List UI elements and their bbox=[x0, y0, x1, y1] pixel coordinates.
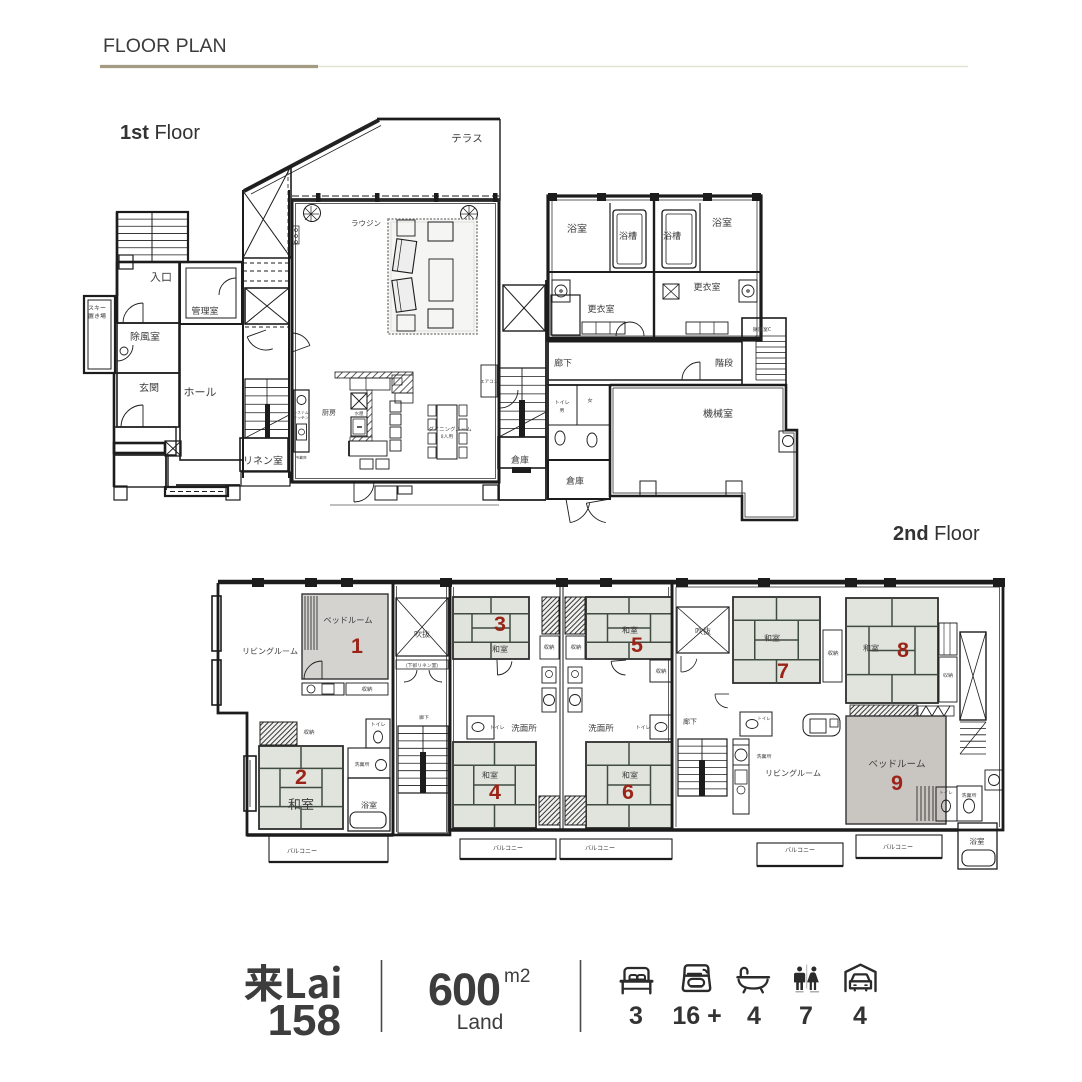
svg-text:1st Floor: 1st Floor bbox=[120, 122, 200, 144]
svg-text:6: 6 bbox=[622, 780, 634, 804]
svg-text:FLOOR PLAN: FLOOR PLAN bbox=[103, 35, 227, 57]
svg-text:Land: Land bbox=[457, 1011, 504, 1034]
svg-text:2: 2 bbox=[295, 765, 307, 789]
svg-text:5: 5 bbox=[631, 633, 643, 657]
svg-text:7: 7 bbox=[799, 1002, 813, 1030]
svg-text:3: 3 bbox=[494, 612, 506, 636]
svg-text:1: 1 bbox=[351, 634, 363, 658]
svg-text:3: 3 bbox=[629, 1002, 643, 1030]
svg-text:600: 600 bbox=[428, 964, 500, 1015]
svg-text:4: 4 bbox=[853, 1002, 867, 1030]
svg-text:8: 8 bbox=[897, 638, 909, 662]
svg-text:4: 4 bbox=[747, 1002, 761, 1030]
svg-text:4: 4 bbox=[489, 780, 501, 804]
svg-text:16 +: 16 + bbox=[672, 1002, 721, 1030]
svg-text:m2: m2 bbox=[504, 966, 530, 987]
svg-text:2nd Floor: 2nd Floor bbox=[893, 523, 980, 545]
svg-text:7: 7 bbox=[777, 659, 789, 683]
svg-text:158: 158 bbox=[268, 996, 341, 1045]
svg-text:9: 9 bbox=[891, 771, 903, 795]
